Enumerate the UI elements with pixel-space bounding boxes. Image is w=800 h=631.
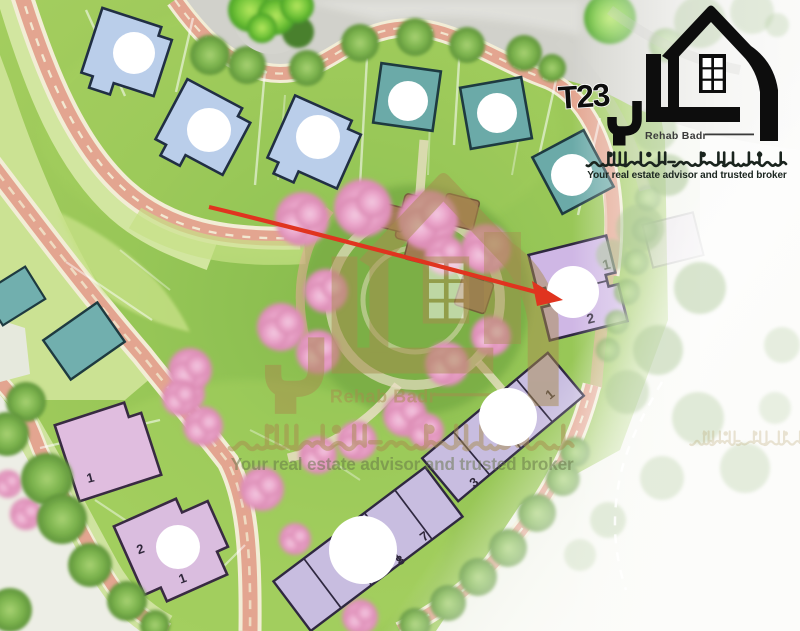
svg-text:Your real estate advisor and t: Your real estate advisor and trusted bro… — [587, 170, 787, 181]
svg-text:Rehab Badr: Rehab Badr — [330, 387, 436, 407]
svg-text:Rehab Badr: Rehab Badr — [645, 130, 707, 142]
svg-text:Your real estate advisor and t: Your real estate advisor and trusted bro… — [231, 454, 574, 474]
svg-text:T23: T23 — [557, 76, 611, 115]
